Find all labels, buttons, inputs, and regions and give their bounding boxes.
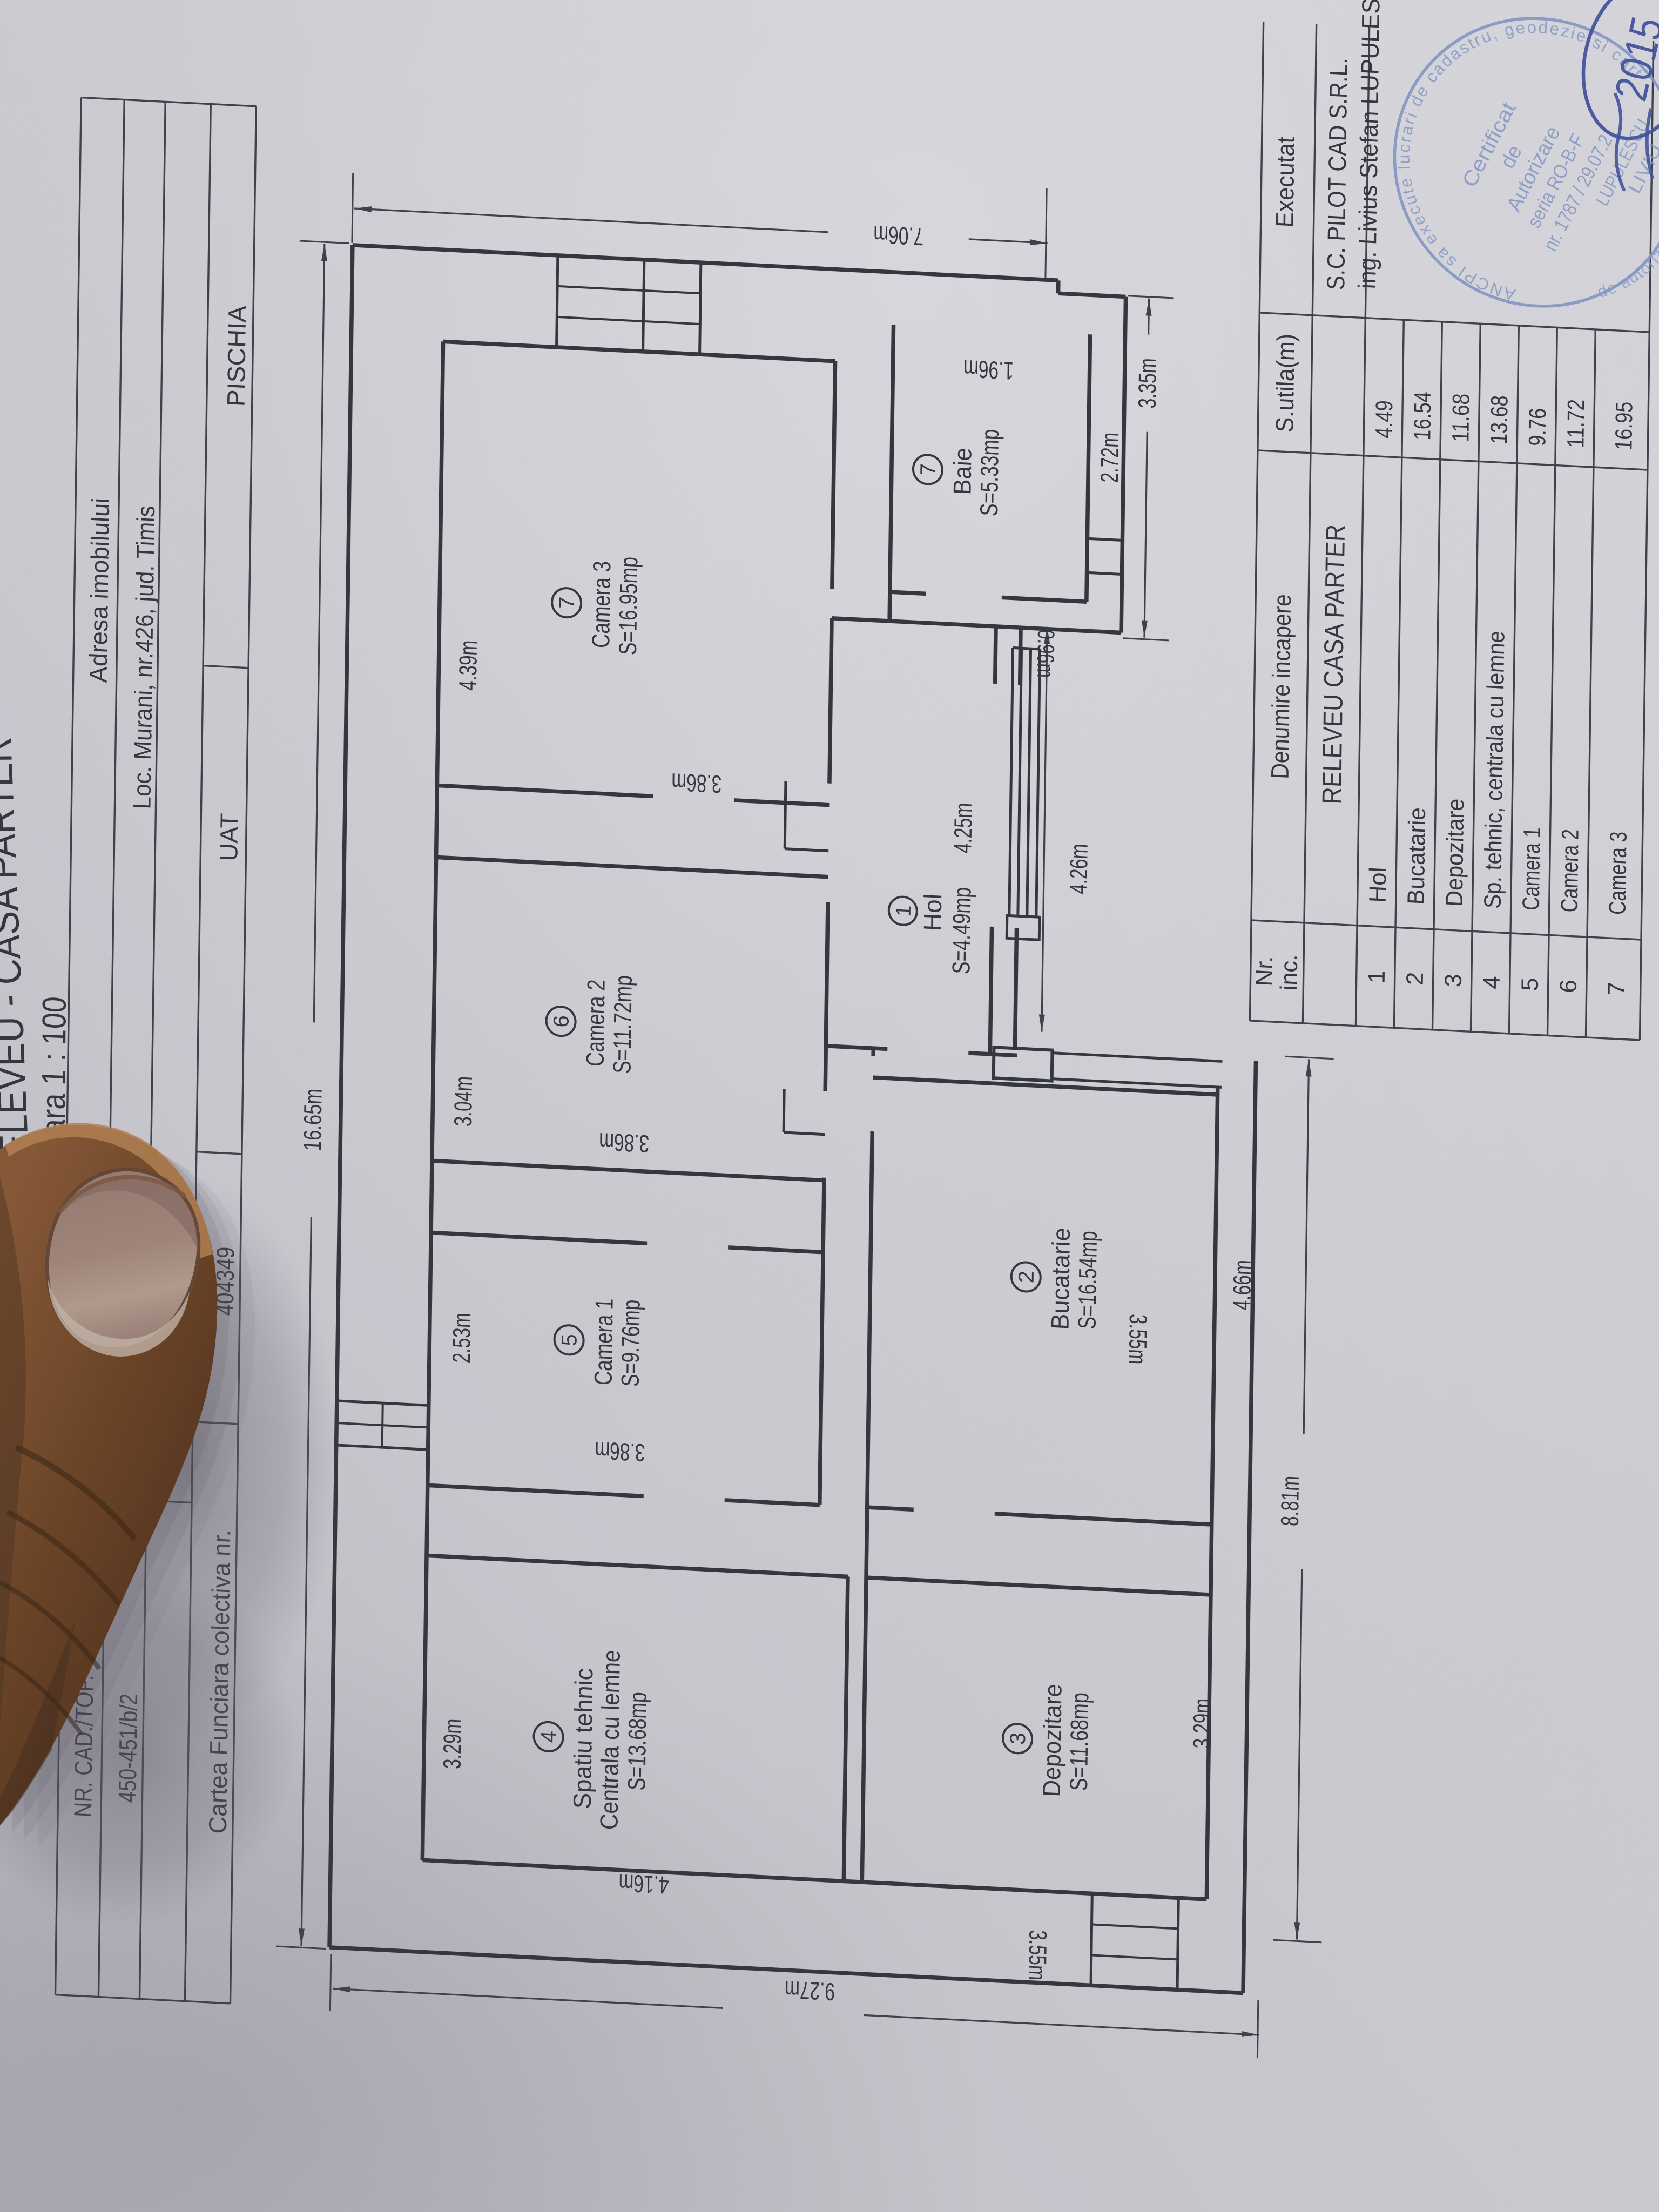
svg-text:S=11.72mp: S=11.72mp bbox=[608, 975, 637, 1075]
svg-text:Depozitare: Depozitare bbox=[1441, 798, 1469, 907]
svg-text:6: 6 bbox=[1555, 979, 1582, 994]
svg-text:8.81m: 8.81m bbox=[1276, 1475, 1304, 1527]
svg-text:16.65m: 16.65m bbox=[298, 1088, 327, 1152]
svg-text:3.55m: 3.55m bbox=[1023, 1930, 1052, 1981]
svg-text:4.39m: 4.39m bbox=[454, 639, 482, 691]
svg-text:1.96m: 1.96m bbox=[963, 355, 1014, 386]
svg-text:7.06m: 7.06m bbox=[873, 220, 924, 251]
svg-text:S=16.54mp: S=16.54mp bbox=[1073, 1230, 1102, 1330]
svg-text:4.16m: 4.16m bbox=[618, 1869, 669, 1900]
svg-text:S=5.33mp: S=5.33mp bbox=[975, 428, 1004, 517]
svg-text:Camera 1: Camera 1 bbox=[1518, 827, 1546, 911]
svg-text:Spatiu tehnic: Spatiu tehnic bbox=[568, 1667, 598, 1810]
svg-text:5: 5 bbox=[1517, 977, 1543, 992]
svg-text:7: 7 bbox=[1603, 981, 1630, 996]
svg-text:3.29m: 3.29m bbox=[1188, 1698, 1216, 1750]
svg-text:Nr.: Nr. bbox=[1251, 955, 1278, 987]
svg-text:6: 6 bbox=[549, 1015, 573, 1028]
svg-text:S=9.76mp: S=9.76mp bbox=[616, 1299, 645, 1387]
svg-text:2.53m: 2.53m bbox=[447, 1312, 476, 1364]
svg-text:Loc. Murani, nr.426, jud. Timi: Loc. Murani, nr.426, jud. Timis bbox=[127, 505, 160, 810]
svg-text:4.66m: 4.66m bbox=[1228, 1259, 1256, 1311]
svg-text:9.76: 9.76 bbox=[1524, 408, 1551, 447]
svg-text:Camera 2: Camera 2 bbox=[1556, 828, 1584, 913]
svg-text:S=16.95mp: S=16.95mp bbox=[613, 556, 643, 656]
svg-text:4.26m: 4.26m bbox=[1064, 843, 1092, 895]
svg-text:S=11.68mp: S=11.68mp bbox=[1064, 1692, 1094, 1792]
svg-text:11.72: 11.72 bbox=[1562, 399, 1589, 448]
svg-text:PISCHIA: PISCHIA bbox=[222, 305, 252, 407]
svg-text:Camera 2: Camera 2 bbox=[581, 979, 610, 1068]
svg-text:7: 7 bbox=[555, 596, 579, 609]
svg-text:3.86m: 3.86m bbox=[671, 768, 722, 799]
svg-text:3.29m: 3.29m bbox=[438, 1718, 467, 1770]
svg-text:Camera 1: Camera 1 bbox=[589, 1298, 618, 1386]
svg-text:Sp. tehnic, centrala cu lemne: Sp. tehnic, centrala cu lemne bbox=[1480, 630, 1510, 909]
svg-text:UAT: UAT bbox=[214, 813, 243, 862]
svg-text:2: 2 bbox=[1402, 972, 1428, 986]
svg-text:9.27m: 9.27m bbox=[785, 1975, 835, 2006]
svg-text:Baie: Baie bbox=[948, 447, 976, 496]
svg-text:0.96m: 0.96m bbox=[1032, 629, 1059, 678]
svg-text:S=13.68mp: S=13.68mp bbox=[622, 1691, 651, 1791]
svg-text:Denumire incapere: Denumire incapere bbox=[1266, 594, 1297, 780]
svg-text:4: 4 bbox=[537, 1730, 561, 1743]
svg-text:5: 5 bbox=[557, 1333, 581, 1346]
svg-text:3.04m: 3.04m bbox=[449, 1075, 477, 1127]
svg-text:3.86m: 3.86m bbox=[595, 1437, 645, 1467]
svg-text:ing. Livius Stefan LUPULESCU: ing. Livius Stefan LUPULESCU bbox=[1353, 0, 1385, 289]
svg-text:16.95: 16.95 bbox=[1610, 401, 1637, 451]
svg-text:S=4.49mp: S=4.49mp bbox=[947, 886, 976, 975]
svg-text:3.86m: 3.86m bbox=[599, 1128, 650, 1158]
svg-text:2.72m: 2.72m bbox=[1095, 431, 1124, 483]
svg-text:4.25m: 4.25m bbox=[948, 802, 977, 854]
svg-text:Bucatarie: Bucatarie bbox=[1403, 807, 1431, 905]
svg-text:3.55m: 3.55m bbox=[1124, 1313, 1152, 1365]
svg-text:2: 2 bbox=[1015, 1270, 1038, 1283]
svg-text:13.68: 13.68 bbox=[1486, 395, 1513, 444]
svg-text:S.utila(m): S.utila(m) bbox=[1270, 333, 1299, 434]
svg-text:inc.: inc. bbox=[1276, 954, 1303, 991]
svg-text:3: 3 bbox=[1006, 1732, 1030, 1745]
svg-text:Executat: Executat bbox=[1271, 136, 1300, 228]
svg-text:Bucatarie: Bucatarie bbox=[1046, 1227, 1075, 1331]
svg-text:7: 7 bbox=[916, 463, 940, 476]
svg-text:Camera 3: Camera 3 bbox=[1604, 831, 1632, 915]
svg-text:Hol: Hol bbox=[1365, 866, 1392, 903]
svg-text:Hol: Hol bbox=[918, 893, 947, 932]
svg-text:Depozitare: Depozitare bbox=[1037, 1683, 1067, 1798]
svg-text:S.C. PILOT CAD S.R.L.: S.C. PILOT CAD S.R.L. bbox=[1321, 57, 1353, 291]
svg-text:Camera 3: Camera 3 bbox=[586, 561, 616, 649]
svg-text:16.54: 16.54 bbox=[1409, 391, 1436, 441]
svg-text:11.68: 11.68 bbox=[1447, 393, 1474, 442]
svg-text:1: 1 bbox=[893, 905, 915, 917]
svg-text:4: 4 bbox=[1479, 975, 1505, 990]
svg-text:1: 1 bbox=[1364, 969, 1390, 984]
svg-text:Centrala cu lemne: Centrala cu lemne bbox=[595, 1649, 625, 1831]
svg-text:3: 3 bbox=[1440, 973, 1467, 988]
svg-text:RELEVEU CASA PARTER: RELEVEU CASA PARTER bbox=[1317, 524, 1351, 805]
svg-text:4.49: 4.49 bbox=[1371, 400, 1398, 439]
svg-text:3.35m: 3.35m bbox=[1133, 358, 1162, 409]
svg-text:Adresa imobilului: Adresa imobilului bbox=[84, 497, 115, 684]
